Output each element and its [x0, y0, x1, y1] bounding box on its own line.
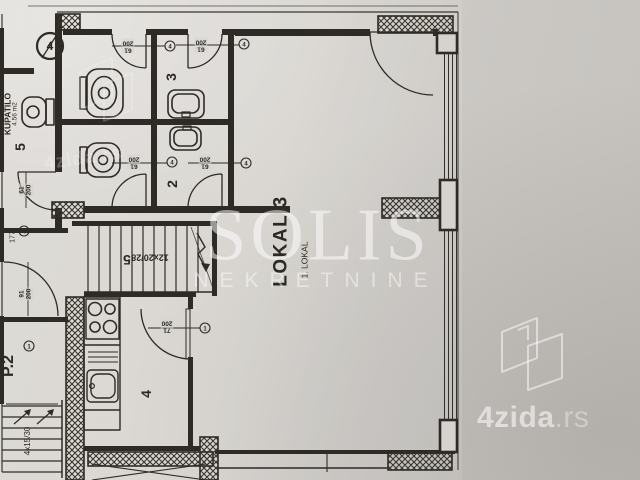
room-label-p2: P.2	[1, 355, 17, 377]
door-dim-bathroom: 61200	[19, 184, 34, 197]
kitchen-sink-icon	[87, 370, 118, 402]
door-marker-wc-2: 4	[244, 162, 248, 168]
door-arc-wc-2	[188, 174, 222, 208]
window-right	[445, 53, 457, 420]
room-label-lokal3: LOKAL 3	[271, 195, 290, 286]
door-arc-kitchen	[141, 309, 191, 359]
stairs-label-number: 5	[123, 253, 131, 267]
stove-icon	[86, 299, 119, 339]
room-label-3: 3	[164, 73, 178, 81]
room-label-lokal-unit: 1. LOKAL	[301, 242, 310, 279]
door-marker-kitchen: 1	[203, 327, 207, 333]
door-leaf-kitchen	[186, 309, 190, 359]
door-dim-hall: 91200	[19, 288, 34, 301]
door-marker-wc-a: 4	[168, 45, 172, 51]
toilet-icon-wc-b	[80, 143, 120, 177]
floorplan-scan: 4 4 4 4 4 1 4 1	[0, 0, 640, 480]
room-label-4: 4	[139, 390, 153, 398]
sink-icon-wc-3	[168, 90, 204, 118]
door-marker-wc-3: 4	[242, 43, 246, 49]
stairs-section-line	[191, 227, 214, 291]
door-marker-wc-b: 4	[170, 161, 174, 167]
sink-icon-wc-2	[170, 126, 201, 150]
floorplan-linework: 4 4 4 4 4 1 4 1	[0, 0, 640, 480]
toilet-icon-bathroom	[22, 97, 54, 127]
columns	[437, 33, 457, 452]
toilet-icon-wc-a	[80, 69, 123, 117]
room-label-2: 2	[165, 180, 179, 188]
door-dim-wc-a: 61200	[122, 39, 135, 54]
door-dim-kitchen: 71200	[161, 319, 174, 334]
door-dim-wc-3: 61200	[195, 38, 208, 53]
door-markers: 4 4 4 4 4 1 4 1	[19, 33, 251, 351]
room-label-bathroom: KUPATILO 4.56 m2	[3, 93, 18, 135]
door-dim-wc-b: 61200	[128, 155, 141, 170]
door-arc-wc-b	[112, 174, 146, 208]
kitchen-counter	[84, 297, 120, 430]
room-label-5: 5	[13, 143, 27, 151]
marker-big: 4	[47, 39, 54, 53]
stairs-label-side: 4x15/30	[24, 427, 32, 455]
door-marker-hall-bottom: 1	[27, 345, 31, 351]
door-arc-entrance	[370, 32, 433, 95]
door-dim-wc-2: 61200	[199, 155, 212, 170]
dimension-lines	[8, 45, 241, 328]
room-label-bathroom-area: 4.56 m2	[12, 93, 19, 135]
stairs-label-main: 12x20/28	[131, 252, 169, 261]
dim-label-177: 177	[9, 231, 16, 243]
